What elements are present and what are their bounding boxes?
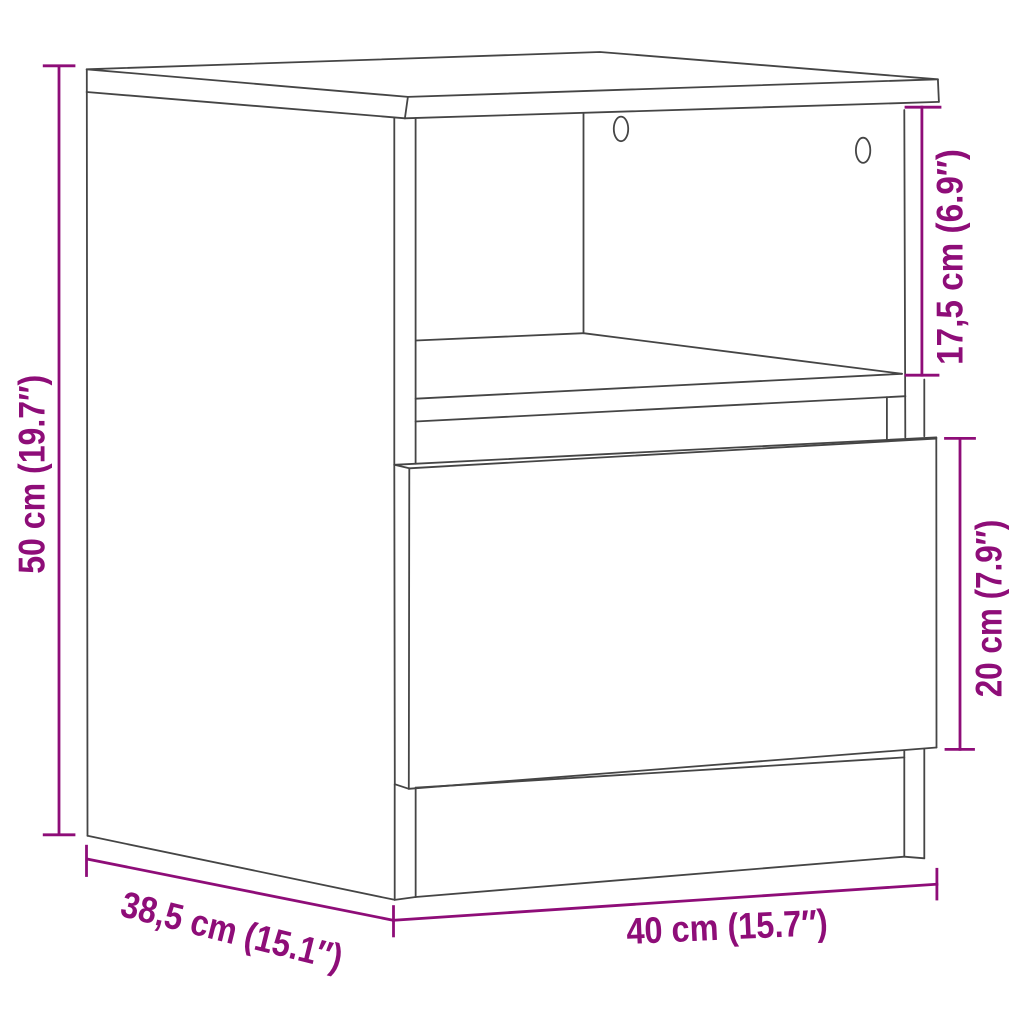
svg-text:50 cm (19.7″): 50 cm (19.7″) (12, 375, 53, 574)
svg-text:20 cm (7.9″): 20 cm (7.9″) (969, 520, 1010, 698)
svg-text:17,5 cm (6.9″): 17,5 cm (6.9″) (930, 149, 971, 365)
